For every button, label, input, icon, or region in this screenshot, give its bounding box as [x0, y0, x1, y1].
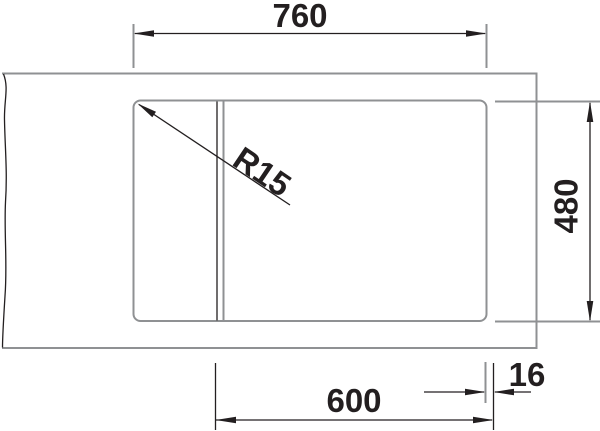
worktop-outline [2, 74, 537, 349]
arrowhead-left-icon [216, 417, 237, 424]
worktop-break-edge [3, 74, 7, 348]
sink-rim [134, 101, 487, 322]
arrowhead-left-icon [134, 30, 155, 37]
arrowhead-up-icon [587, 102, 594, 123]
sink-dimension-drawing: 760 480 R15 16 600 [0, 0, 600, 431]
arrowhead-right-icon [465, 389, 486, 396]
dimension-depth: 480 [495, 102, 600, 322]
arrowhead-right-icon [473, 417, 494, 424]
dimension-cabinet-width: 600 [216, 363, 494, 430]
arrowhead-down-icon [587, 301, 594, 322]
dimension-width: 760 [134, 0, 487, 68]
arrowhead-right-icon [466, 30, 487, 37]
leader-arrowhead-icon [138, 104, 157, 118]
cabinet-width-label: 600 [326, 382, 381, 419]
edge-offset-label: 16 [509, 356, 546, 393]
corner-radius-label: R15 [227, 139, 298, 204]
dimension-depth-label: 480 [548, 178, 585, 233]
dimension-width-label: 760 [272, 0, 327, 34]
